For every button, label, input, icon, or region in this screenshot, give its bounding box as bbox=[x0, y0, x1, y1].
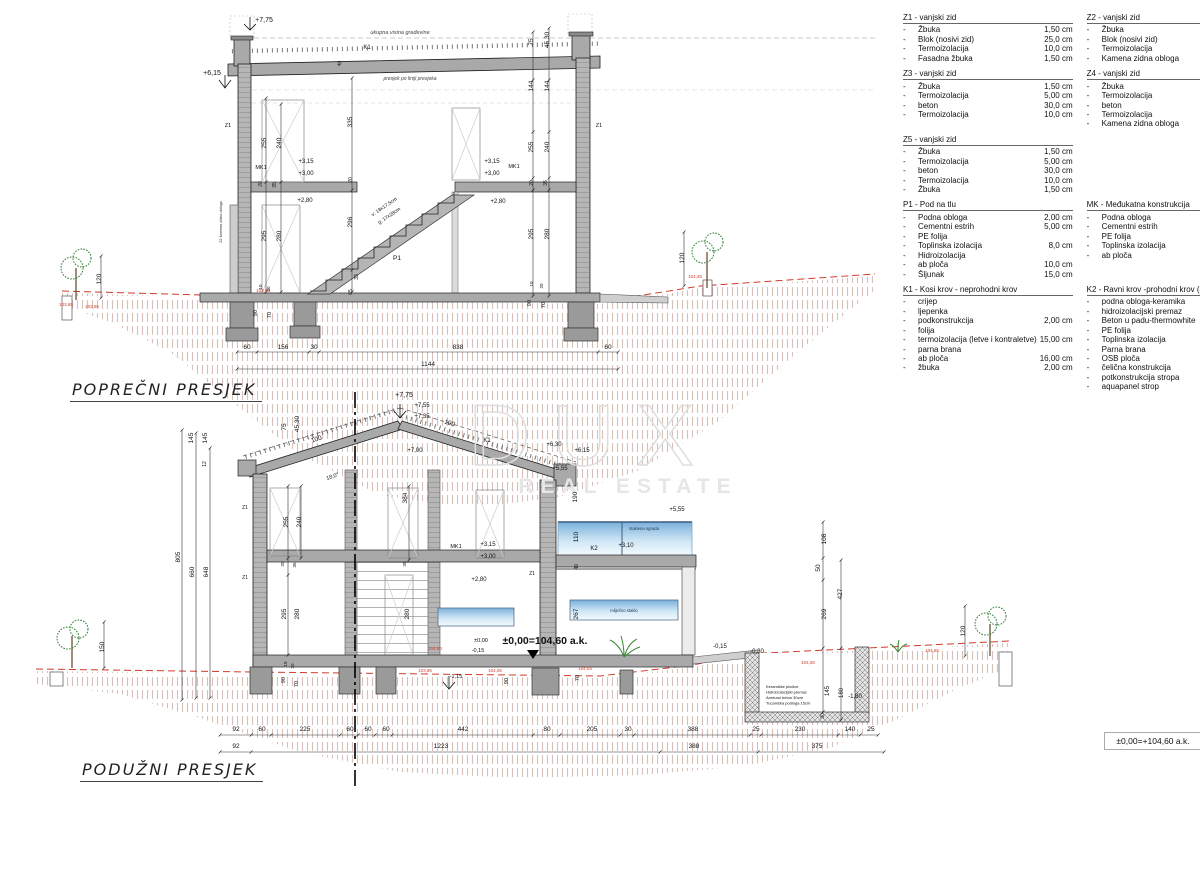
dim-label: MK1 bbox=[450, 544, 461, 550]
dim-label: 25 bbox=[752, 726, 760, 733]
dim-label: 805 bbox=[175, 551, 182, 562]
legend-item: -Žbuka1,50 cm bbox=[903, 185, 1073, 194]
floor-slab bbox=[251, 182, 357, 192]
dim-label: 20 bbox=[290, 663, 295, 669]
legend-item: -Blok (nosivi zid)25,0 cm bbox=[903, 35, 1073, 44]
dim-label: 838 bbox=[453, 344, 464, 351]
dim-label: 10 bbox=[258, 284, 263, 290]
terrain-elevation-label: 104,04 bbox=[578, 666, 592, 671]
dim-label: 90 bbox=[253, 310, 259, 316]
architectural-sections-sheet: DUXREAL ESTATE+7,75ukupna visina građevi… bbox=[0, 0, 1200, 883]
dim-label: 240 bbox=[276, 137, 283, 148]
dim-label: 648 bbox=[203, 566, 210, 577]
legend-section-K1: K1 - Kosi krov - neprohodni krov-crijep-… bbox=[903, 285, 1073, 392]
dim-label: 120 bbox=[96, 273, 103, 284]
legend-section-title: Z2 - vanjski zid bbox=[1087, 13, 1200, 24]
dim-label: 35 bbox=[292, 562, 297, 568]
legend-section-title: Z5 - vanjski zid bbox=[903, 135, 1073, 146]
legend-item: -Cementni estrih5,00 cm bbox=[1087, 222, 1200, 231]
legend-item: -PE folija bbox=[1087, 232, 1200, 241]
dim-label: 60 bbox=[258, 726, 266, 733]
dim-label: 70 bbox=[267, 312, 273, 318]
dim-label: 20 bbox=[539, 283, 544, 289]
dim-label: K2 bbox=[590, 546, 598, 552]
retaining-post bbox=[999, 652, 1012, 686]
dim-label: 70 bbox=[541, 302, 547, 308]
legend-item: -PE folija bbox=[1087, 326, 1200, 335]
terrain-elevation-label: 104,55 bbox=[925, 648, 939, 653]
dim-label: 35 bbox=[543, 180, 549, 186]
cross-section-title: POPREČNI PRESJEK bbox=[70, 380, 262, 402]
legend-item: -parna brana bbox=[903, 345, 1073, 354]
dim-label: 60 bbox=[604, 344, 612, 351]
ground-slab bbox=[253, 655, 693, 667]
legend-spacer bbox=[1087, 135, 1200, 195]
dim-label: 145 bbox=[202, 432, 209, 443]
dim-label: +7,75 bbox=[395, 392, 413, 399]
legend-item: -Termoizolacija10,0 cm bbox=[903, 44, 1073, 53]
pool-layers-note: Hidroizolacijski premaz bbox=[766, 690, 807, 695]
legend-item: -Hidroizolacija bbox=[903, 251, 1073, 260]
legend-section-title: Z4 - vanjski zid bbox=[1087, 69, 1200, 80]
legend-item: -ab ploča20,0 cm bbox=[1087, 251, 1200, 260]
dim-label: 20 bbox=[280, 561, 285, 567]
dim-label: 205 bbox=[587, 726, 598, 733]
materials-legend: Z1 - vanjski zid-Žbuka1,50 cm-Blok (nosi… bbox=[903, 13, 1195, 392]
tree bbox=[692, 233, 723, 288]
legend-item: -Toplinska izolacija8,0 cm bbox=[1087, 241, 1200, 250]
legend-section-Z5: Z5 - vanjski zid-Žbuka1,50 cm-Termoizola… bbox=[903, 135, 1073, 195]
dim-label: +3,00 bbox=[484, 171, 500, 177]
dim-label: -0,30 bbox=[750, 649, 764, 655]
dim-label: 280 bbox=[276, 230, 283, 241]
legend-item: -čelična konstrukcija30,0cm bbox=[1087, 363, 1200, 372]
dim-label: 30 bbox=[310, 344, 318, 351]
dim-label: 120 bbox=[679, 252, 686, 263]
dim-label: 427 bbox=[837, 588, 844, 599]
dim-label: 384 bbox=[402, 492, 409, 503]
legend-item: -Žbuka1,50 cm bbox=[903, 82, 1073, 91]
legend-item: -Žbuka1,50 cm bbox=[903, 147, 1073, 156]
dim-label: 65 bbox=[348, 289, 354, 295]
legend-section-title: Z3 - vanjski zid bbox=[903, 69, 1073, 80]
dim-label: 145 bbox=[188, 432, 195, 443]
dim-label: 280 bbox=[544, 228, 551, 239]
dim-label: 296 bbox=[347, 216, 354, 227]
legend-item: -Žbuka1,50 cm bbox=[1087, 82, 1200, 91]
dim-label: +6,30 bbox=[546, 442, 562, 448]
terrain-elevation-label: 103,55 bbox=[85, 304, 99, 309]
dim-label: 20 bbox=[258, 181, 264, 187]
dim-label: 295 bbox=[261, 230, 268, 241]
pool-layers-note: Keramičke pločice bbox=[766, 684, 799, 689]
dim-label: 388 bbox=[688, 726, 699, 733]
legend-item: -OSB ploča2,0cm bbox=[1087, 354, 1200, 363]
dim-label: 10 bbox=[529, 281, 534, 287]
pool bbox=[745, 647, 869, 722]
dim-label: 240 bbox=[544, 141, 551, 152]
legend-item: -beton30,0 cm bbox=[1087, 101, 1200, 110]
dim-label: +3,00 bbox=[480, 554, 496, 560]
dim-label: 335 bbox=[347, 116, 354, 127]
legend-item: -Parna brana bbox=[1087, 345, 1200, 354]
dim-label: presjek po liniji presjeka bbox=[382, 76, 436, 82]
dim-label: +3,15 bbox=[298, 159, 314, 165]
legend-item: -hidroizolacijski premaz bbox=[1087, 307, 1200, 316]
dim-label: 255 bbox=[261, 137, 268, 148]
dim-label: 45,30 bbox=[294, 415, 301, 432]
tree bbox=[61, 249, 91, 300]
legend-item: -Žbuka1,50 cm bbox=[1087, 25, 1200, 34]
dim-label: 280 bbox=[404, 608, 411, 619]
dim-label: MK1 bbox=[508, 164, 519, 170]
ground-slab bbox=[200, 293, 600, 302]
dim-label: +7,55 bbox=[414, 403, 430, 409]
dim-label: +3,10 bbox=[618, 543, 634, 549]
dim-label: 60 bbox=[382, 726, 390, 733]
retaining-post bbox=[50, 672, 63, 686]
dim-label: +7,35 bbox=[414, 414, 430, 420]
legend-section-title: K2 - Ravni krov -prohodni krov (čelik) bbox=[1087, 285, 1200, 296]
dim-label: 18,0° bbox=[326, 472, 340, 482]
legend-section-Z2: Z2 - vanjski zid-Žbuka1,50 cm-Blok (nosi… bbox=[1087, 13, 1200, 63]
glass-railing-label: staklena ograda bbox=[629, 526, 659, 531]
dim-label: 269 bbox=[821, 608, 828, 619]
dim-label: +5,55 bbox=[669, 507, 685, 513]
dim-label: 20 bbox=[348, 177, 354, 183]
parapet-left bbox=[234, 38, 250, 66]
datum-note: ±0,00=+104,60 a.k. bbox=[1104, 732, 1200, 750]
legend-item: -ab ploča10,0 cm bbox=[903, 260, 1073, 269]
legend-item: -Cementni estrih5,00 cm bbox=[903, 222, 1073, 231]
watermark-text: REAL ESTATE bbox=[518, 475, 737, 498]
milk-glass-label: mliječno staklo bbox=[610, 608, 638, 613]
dim-label: 156 bbox=[278, 344, 289, 351]
dim-label: 180 bbox=[839, 687, 845, 698]
dim-label: +6,15 bbox=[203, 70, 221, 77]
legend-item: -Žbuka1,50 cm bbox=[903, 25, 1073, 34]
dim-label: 30 bbox=[624, 726, 632, 733]
terrace-plant bbox=[610, 636, 640, 657]
dim-label: ukupna visina građevine bbox=[370, 30, 429, 36]
watermark-text: DUX bbox=[468, 388, 716, 484]
tree bbox=[57, 620, 88, 668]
legend-section-title: K1 - Kosi krov - neprohodni krov bbox=[903, 285, 1073, 296]
dim-label: +3,15 bbox=[484, 159, 500, 165]
legend-item: -ljepenka bbox=[903, 307, 1073, 316]
dim-label: +2,80 bbox=[297, 198, 313, 204]
legend-item: -Blok (nosivi zid)25,0 cm bbox=[1087, 35, 1200, 44]
dim-label: +3,15 bbox=[480, 542, 496, 548]
window-upper bbox=[452, 108, 480, 180]
legend-item: -termoizolacija (letve i kontraletve)15,… bbox=[903, 335, 1073, 344]
dim-label: 80 bbox=[543, 726, 551, 733]
floor-slab bbox=[267, 550, 540, 562]
roof-slab bbox=[228, 56, 600, 76]
dim-label: 108 bbox=[821, 533, 828, 544]
dim-label: Z1 bbox=[225, 123, 231, 129]
dim-label: 225 bbox=[300, 726, 311, 733]
legend-item: -Termoizolacija10,0 cm bbox=[1087, 44, 1200, 53]
legend-item: -Termoizolacija5,00 cm bbox=[1087, 91, 1200, 100]
dim-label: 144 bbox=[544, 80, 551, 91]
left-wall bbox=[238, 64, 251, 295]
dim-label: +2,80 bbox=[471, 577, 487, 583]
dim-label: +7,75 bbox=[255, 17, 273, 24]
dim-label: 45,30 bbox=[544, 31, 551, 48]
window-upper bbox=[262, 100, 304, 182]
legend-item: -žbuka2,00 cm bbox=[903, 363, 1073, 372]
dim-label: -1,15 bbox=[450, 674, 463, 680]
dim-label: 12 bbox=[202, 461, 208, 467]
dim-label: Z2 kamena zidna obloga bbox=[219, 200, 223, 242]
retaining-post bbox=[62, 296, 72, 320]
legend-item: -potkonstrukcija stropa3,0 cm bbox=[1087, 373, 1200, 382]
legend-section-MK: MK - Međukatna konstrukcija-Podna obloga… bbox=[1087, 200, 1200, 279]
dim-label: +5,55 bbox=[552, 466, 568, 472]
legend-item: -crijep bbox=[903, 297, 1073, 306]
dim-label: +2,80 bbox=[490, 199, 506, 205]
legend-item: -folija bbox=[903, 326, 1073, 335]
legend-item: -Beton u padu-thermowhite4-8 cm bbox=[1087, 316, 1200, 325]
dim-label: +7,00 bbox=[407, 448, 423, 454]
dim-label: 10 bbox=[283, 661, 288, 667]
dim-label: -1,80 bbox=[848, 694, 862, 700]
dim-label: K1 bbox=[483, 438, 491, 444]
dim-label: 33 bbox=[354, 274, 360, 280]
dim-label: 442 bbox=[458, 726, 469, 733]
stair-shaft-wall bbox=[428, 470, 440, 666]
dim-label: 60 bbox=[346, 726, 354, 733]
dim-label: -0,15 bbox=[472, 648, 485, 654]
dim-label: ±0,00 bbox=[474, 638, 488, 644]
terrain-elevation-label: 103,96 bbox=[418, 668, 432, 673]
dim-label: Z1 bbox=[596, 123, 602, 129]
left-wall bbox=[253, 474, 267, 666]
legend-item: -Podna obloga2,00 cm bbox=[903, 213, 1073, 222]
dim-label: +6,15 bbox=[574, 448, 590, 454]
legend-item: -Termoizolacija5,00 cm bbox=[903, 91, 1073, 100]
dim-label: 25 bbox=[867, 726, 875, 733]
dim-label: 120 bbox=[960, 625, 967, 636]
legend-item: -Kamena zidna obloga5,00 cm bbox=[1087, 119, 1200, 128]
dim-label: 1144 bbox=[421, 361, 435, 368]
dim-label: 92 bbox=[232, 743, 240, 750]
legend-section-P1: P1 - Pod na tlu-Podna obloga2,00 cm-Ceme… bbox=[903, 200, 1073, 279]
legend-item: -beton30,0 cm bbox=[903, 101, 1073, 110]
dim-label: 60 bbox=[364, 726, 372, 733]
legend-section-Z3: Z3 - vanjski zid-Žbuka1,50 cm-Termoizola… bbox=[903, 69, 1073, 129]
dim-label: Z1 bbox=[242, 505, 248, 511]
dim-label: 35 bbox=[272, 182, 278, 188]
staircase bbox=[357, 558, 428, 658]
legend-section-title: MK - Međukatna konstrukcija bbox=[1087, 200, 1200, 211]
stone-cladding bbox=[230, 205, 238, 297]
dim-label: 35 bbox=[402, 561, 407, 567]
longitudinal-section-title: PODUŽNI PRESJEK bbox=[80, 760, 263, 782]
dim-label: 145 bbox=[825, 685, 831, 696]
terrain-elevation-label: 104,06 bbox=[488, 668, 502, 673]
dim-label: 49 bbox=[574, 564, 580, 570]
legend-section-Z4: Z4 - vanjski zid-Žbuka1,50 cm-Termoizola… bbox=[1087, 69, 1200, 129]
dim-label: Z1 bbox=[529, 571, 535, 577]
dim-label: 230 bbox=[795, 726, 806, 733]
dim-label: 280 bbox=[294, 608, 301, 619]
dim-label: 75 bbox=[281, 423, 288, 431]
dim-label: 70 bbox=[575, 675, 581, 681]
legend-section-title: Z1 - vanjski zid bbox=[903, 13, 1073, 24]
dim-label: 30 bbox=[820, 713, 826, 719]
dim-label: 375 bbox=[812, 743, 823, 750]
dim-label: 295 bbox=[528, 228, 535, 239]
legend-item: -Termoizolacija10,0 cm bbox=[1087, 110, 1200, 119]
dim-label: 150 bbox=[99, 641, 106, 652]
dim-label: 140 bbox=[845, 726, 856, 733]
annex-wall bbox=[682, 567, 695, 655]
dim-label: 90 bbox=[281, 677, 287, 683]
legend-item: -Toplinska izolacija8,0 cm bbox=[903, 241, 1073, 250]
dim-label: P1 bbox=[393, 255, 401, 262]
legend-item: -podna obloga-keramika2,00 cm bbox=[1087, 297, 1200, 306]
legend-item: -Toplinska izolacija2,0 cm bbox=[1087, 335, 1200, 344]
terrain-elevation-label: 104,06 bbox=[801, 660, 815, 665]
dim-label: -0,15 bbox=[713, 644, 727, 650]
dim-label: 110 bbox=[573, 531, 580, 542]
dim-label: 60 bbox=[243, 344, 251, 351]
legend-item: -Podna obloga2,00 cm bbox=[1087, 213, 1200, 222]
legend-item: -Fasadna žbuka1,50 cm bbox=[903, 54, 1073, 63]
dim-label: 388 bbox=[689, 743, 700, 750]
floor-slab bbox=[455, 182, 576, 192]
dim-label: 75 bbox=[528, 38, 535, 46]
legend-item: -Termoizolacija10,0 cm bbox=[903, 176, 1073, 185]
dim-label: Z1 bbox=[242, 575, 248, 581]
datum-level-label: ±0,00=104,60 a.k. bbox=[503, 635, 588, 647]
dim-label: 70 bbox=[294, 681, 300, 687]
legend-item: -beton30,0 cm bbox=[903, 166, 1073, 175]
dim-label: 20 bbox=[266, 286, 271, 292]
legend-section-title: P1 - Pod na tlu bbox=[903, 200, 1073, 211]
right-wall bbox=[576, 58, 590, 295]
dim-label: 255 bbox=[528, 141, 535, 152]
dim-label: MK1 bbox=[255, 165, 266, 171]
parapet-right bbox=[572, 34, 590, 60]
legend-section-K2: K2 - Ravni krov -prohodni krov (čelik)-p… bbox=[1087, 285, 1200, 392]
dim-label: 144 bbox=[528, 80, 535, 91]
legend-item: -podkonstrukcija2,00 cm bbox=[903, 316, 1073, 325]
legend-section-Z1: Z1 - vanjski zid-Žbuka1,50 cm-Blok (nosi… bbox=[903, 13, 1073, 63]
dim-label: 190 bbox=[572, 491, 579, 502]
dim-label: 90 bbox=[527, 300, 533, 306]
legend-item: -PE folija bbox=[903, 232, 1073, 241]
pool-layers-note: Armirani beton 30cm bbox=[766, 695, 804, 700]
dim-label: 240 bbox=[296, 516, 303, 527]
dim-label: 660 bbox=[189, 566, 196, 577]
dim-label: 295 bbox=[281, 608, 288, 619]
pool-layers-note: Tucanička podloga 15cm bbox=[766, 701, 811, 706]
terrain-elevation-label: 103,65 bbox=[59, 302, 73, 307]
dim-label: 255 bbox=[283, 516, 290, 527]
legend-item: -ab ploča16,00 cm bbox=[903, 354, 1073, 363]
dim-label: 90 bbox=[504, 678, 510, 684]
legend-item: -Šljunak15,0 cm bbox=[903, 270, 1073, 279]
milk-glass-window bbox=[438, 608, 514, 626]
terrain-elevation-label: 104,60 bbox=[428, 646, 442, 651]
terrain-elevation-label: 104,45 bbox=[688, 274, 702, 279]
dim-label: 1223 bbox=[434, 743, 449, 750]
dim-label: 20 bbox=[529, 180, 535, 186]
dim-label: K1 bbox=[363, 45, 371, 51]
dim-label: 92 bbox=[232, 726, 240, 733]
legend-item: -Termoizolacija5,00 cm bbox=[903, 157, 1073, 166]
legend-item: -aquapanel strop1,25cm bbox=[1087, 382, 1200, 391]
dim-label: 50 bbox=[815, 564, 822, 572]
legend-item: -Termoizolacija10,0 cm bbox=[903, 110, 1073, 119]
dim-label: 267 bbox=[573, 608, 580, 619]
legend-item: -Kamena zidna obloga5,00 cm bbox=[1087, 54, 1200, 63]
stair-flight bbox=[308, 195, 474, 294]
dim-label: +3,00 bbox=[298, 171, 314, 177]
